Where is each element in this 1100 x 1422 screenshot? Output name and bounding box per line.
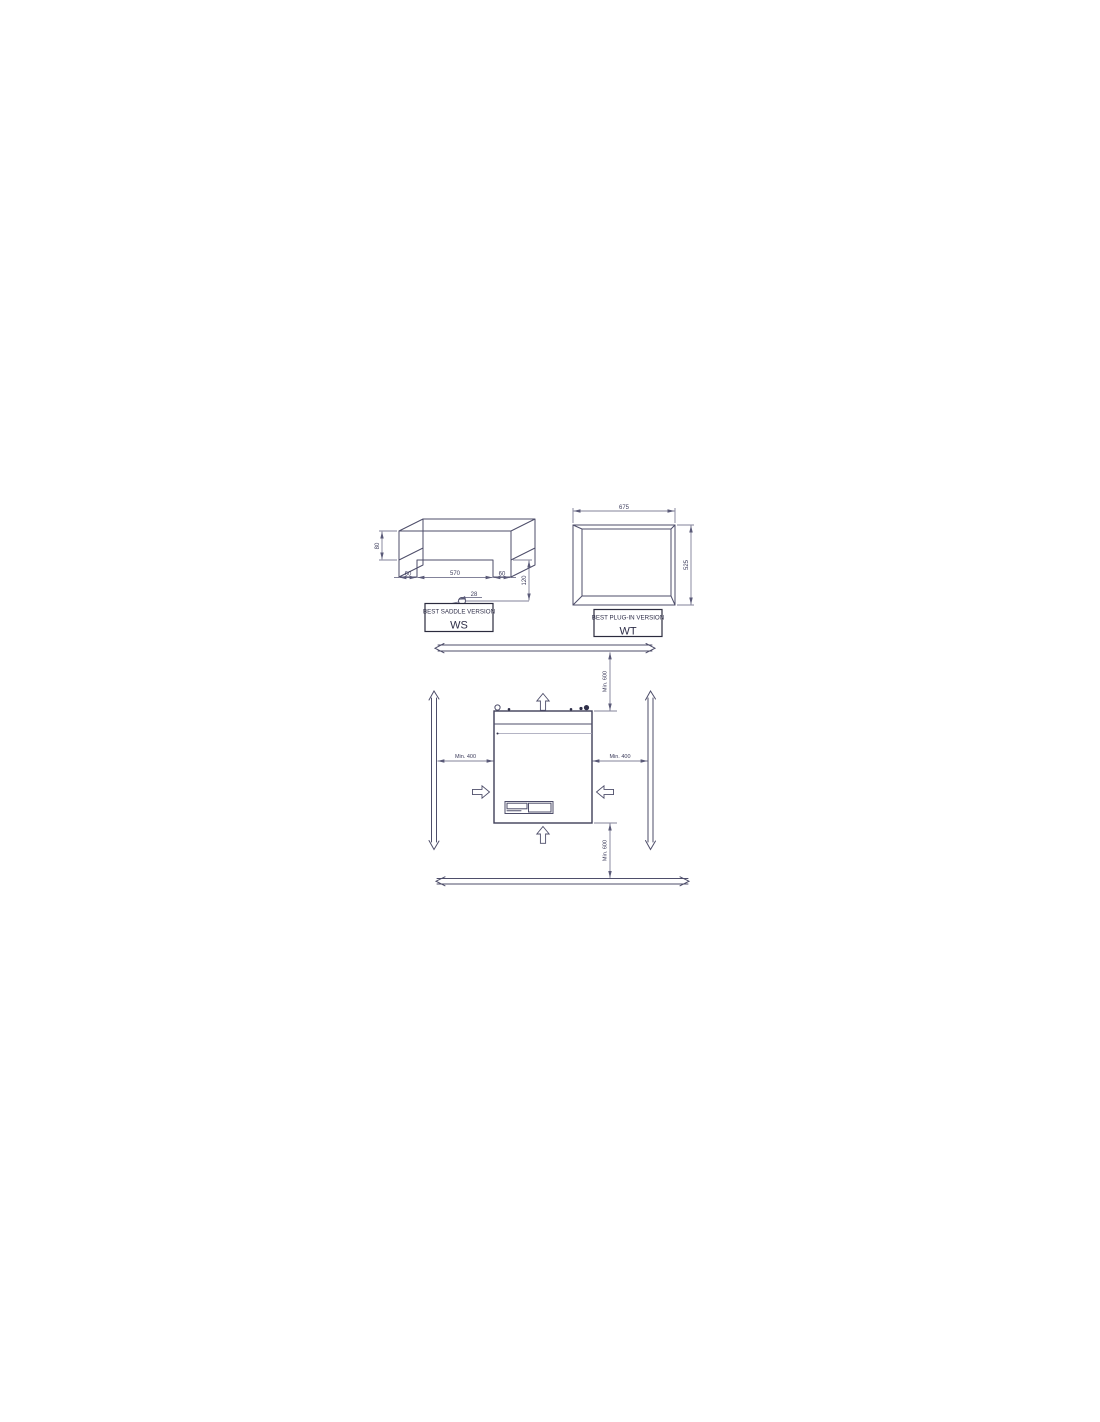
ws-dim-height: 80: [375, 531, 397, 560]
ws-dim-bottom-chain: 60 570 60: [394, 571, 516, 578]
clearance-dim-top: Min. 600: [594, 652, 617, 711]
clearance-left-label: Min. 400: [455, 754, 476, 760]
clearance-dim-left: Min. 400: [437, 754, 493, 761]
wt-label-code: WT: [619, 626, 636, 638]
wall-left: [429, 691, 439, 850]
clearance-right-label: Min. 400: [609, 754, 630, 760]
ws-dim-height-label: 80: [375, 542, 381, 549]
ws-dim-hole-label: 28: [471, 592, 478, 598]
ws-dim-drop: 120: [513, 560, 532, 600]
plug-in-version-drawing: 675 525 BEST PLUG-IN VERSION WT: [573, 505, 694, 638]
scanned-technical-drawing-page: 80 60 570 60 120 28 BEST SADDL: [0, 0, 1100, 1422]
ws-dim-drop-label: 120: [522, 575, 528, 586]
airflow-arrow-left-icon: [597, 786, 614, 798]
wall-top: [435, 644, 655, 653]
wt-dim-width: 675: [573, 505, 675, 523]
ws-label-title: BEST SADDLE VERSION: [423, 609, 495, 616]
ws-label-box: BEST SADDLE VERSION WS: [423, 604, 495, 632]
wt-dim-height: 525: [677, 525, 694, 605]
wall-bottom: [436, 877, 689, 886]
clearance-diagram: Min. 600 Min. 600 Min. 400 Min. 400: [429, 644, 689, 886]
appliance-unit: [494, 705, 592, 823]
ws-dim-foot-left-label: 60: [405, 571, 412, 577]
unit-fitting-left-icon: [495, 705, 500, 710]
control-panel: [505, 802, 553, 814]
ws-label-code: WS: [450, 620, 468, 632]
ws-hole-callout: 28: [447, 592, 529, 605]
unit-fitting-right-icon: [584, 705, 589, 710]
airflow-arrow-up-bottom-icon: [537, 827, 549, 844]
clearance-top-label: Min. 600: [603, 671, 609, 692]
wt-dim-height-label: 525: [684, 559, 690, 570]
clearance-bottom-label: Min. 600: [603, 840, 609, 861]
wt-frame-outline: [573, 525, 675, 605]
airflow-arrow-right-icon: [473, 786, 490, 798]
wt-label-box: BEST PLUG-IN VERSION WT: [592, 610, 664, 638]
clearance-dim-bottom: Min. 600: [594, 823, 617, 878]
wall-right: [646, 691, 656, 850]
technical-drawing-canvas: 80 60 570 60 120 28 BEST SADDL: [0, 0, 1100, 1422]
airflow-arrow-up-top-icon: [537, 694, 549, 711]
unit-body: [494, 711, 592, 823]
ws-dim-foot-right-label: 60: [499, 571, 506, 577]
clearance-dim-right: Min. 400: [592, 754, 647, 761]
ws-dim-span-label: 570: [450, 571, 461, 577]
wt-dim-width-label: 675: [619, 505, 630, 511]
saddle-version-drawing: 80 60 570 60 120 28 BEST SADDL: [375, 519, 535, 632]
wt-label-title: BEST PLUG-IN VERSION: [592, 615, 664, 622]
saddle-outline: [399, 519, 535, 577]
